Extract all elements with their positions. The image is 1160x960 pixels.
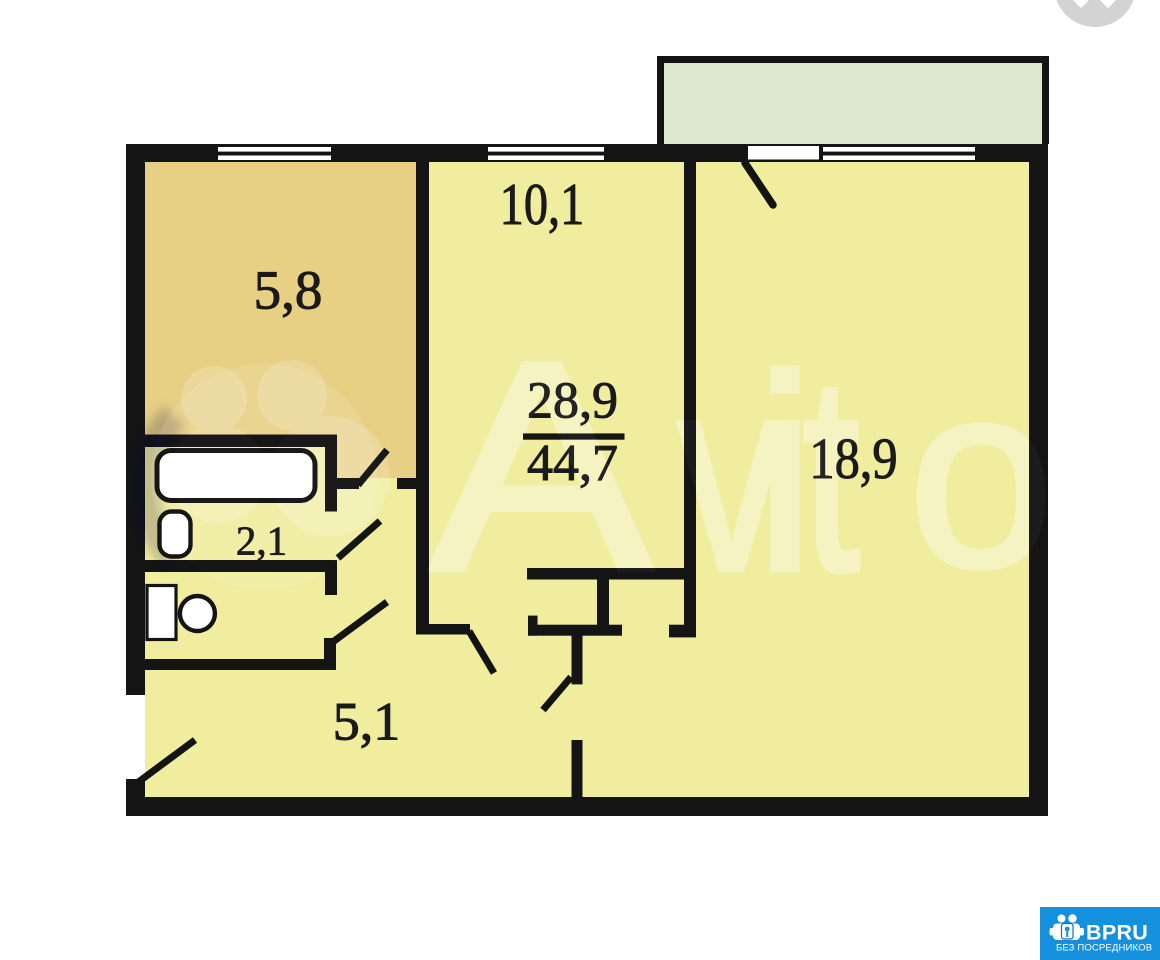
svg-text:A: A [429, 300, 655, 634]
svg-text:o: o [908, 329, 1054, 622]
svg-text:t: t [802, 319, 860, 630]
svg-text:5,8: 5,8 [254, 260, 323, 321]
svg-text:10,1: 10,1 [500, 172, 585, 238]
svg-text:БЕЗ ПОСРЕДНИКОВ: БЕЗ ПОСРЕДНИКОВ [1056, 942, 1152, 953]
svg-text:BPRU: BPRU [1086, 921, 1148, 945]
svg-text:5,1: 5,1 [333, 692, 401, 752]
